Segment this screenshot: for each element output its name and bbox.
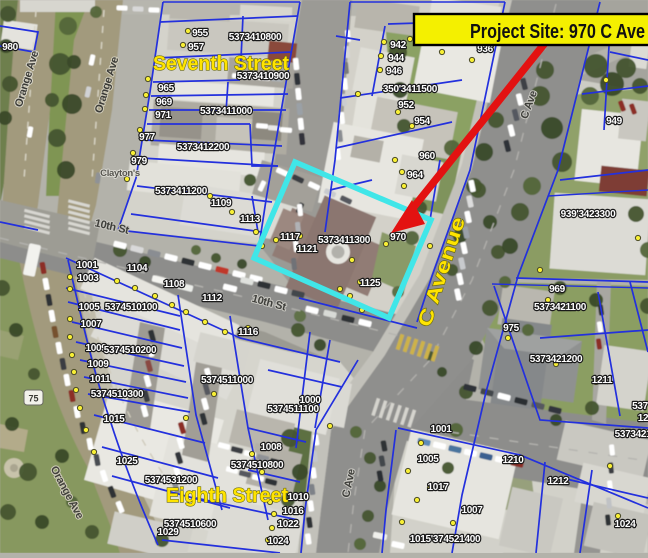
svg-text:1001: 1001 (430, 424, 452, 435)
svg-text:5374511100: 5374511100 (267, 404, 319, 415)
svg-text:955: 955 (192, 28, 209, 39)
svg-text:1010: 1010 (287, 492, 309, 503)
svg-text:5373411200: 5373411200 (155, 186, 208, 197)
svg-text:970: 970 (390, 232, 407, 243)
svg-text:1024: 1024 (614, 519, 636, 530)
svg-text:969: 969 (549, 284, 566, 295)
svg-text:979: 979 (131, 156, 148, 167)
svg-text:1017: 1017 (427, 482, 449, 493)
svg-text:1001: 1001 (76, 260, 98, 271)
svg-text:954: 954 (414, 116, 431, 127)
svg-text:5373410800: 5373410800 (229, 32, 282, 43)
svg-text:1007: 1007 (80, 319, 102, 330)
svg-text:1005: 1005 (417, 454, 439, 465)
svg-text:939'3423300: 939'3423300 (561, 209, 616, 220)
svg-text:965: 965 (158, 83, 175, 94)
svg-text:971: 971 (155, 110, 172, 121)
svg-text:1113: 1113 (240, 214, 261, 225)
svg-text:350'3411500: 350'3411500 (383, 84, 438, 95)
svg-text:944: 944 (388, 53, 405, 64)
svg-text:946: 946 (386, 66, 403, 77)
svg-text:Eighth Street: Eighth Street (166, 485, 288, 507)
svg-text:537: 537 (632, 401, 648, 412)
svg-text:Seventh Street: Seventh Street (153, 53, 289, 75)
svg-text:1116: 1116 (238, 327, 259, 338)
svg-text:1015'374521400: 1015'374521400 (410, 534, 481, 545)
svg-text:Clayton's: Clayton's (100, 168, 140, 179)
svg-text:977: 977 (139, 132, 156, 143)
svg-text:957: 957 (188, 42, 205, 53)
svg-text:1212: 1212 (547, 476, 569, 487)
svg-text:1024: 1024 (267, 536, 289, 547)
svg-text:952: 952 (398, 100, 415, 111)
svg-text:1211: 1211 (592, 375, 613, 386)
svg-text:1008: 1008 (260, 442, 282, 453)
svg-text:1104: 1104 (127, 263, 148, 274)
svg-text:5373421: 5373421 (615, 429, 648, 440)
svg-text:5373421200: 5373421200 (530, 354, 583, 365)
svg-text:5373412200: 5373412200 (177, 142, 230, 153)
svg-text:975: 975 (503, 323, 520, 334)
svg-text:949: 949 (606, 116, 623, 127)
svg-text:5373411300: 5373411300 (318, 235, 371, 246)
svg-text:1108: 1108 (164, 279, 185, 290)
svg-text:5374510100: 5374510100 (105, 302, 158, 313)
svg-text:960: 960 (419, 151, 436, 162)
svg-text:1029: 1029 (157, 527, 179, 538)
svg-text:1005: 1005 (78, 302, 100, 313)
svg-text:1112: 1112 (202, 293, 223, 304)
svg-text:5373411000: 5373411000 (200, 106, 253, 117)
svg-text:1016: 1016 (282, 506, 304, 517)
svg-text:5373421100: 5373421100 (534, 302, 587, 313)
svg-text:5374510300: 5374510300 (91, 389, 144, 400)
svg-text:75: 75 (28, 394, 38, 404)
svg-text:964: 964 (407, 170, 424, 181)
svg-text:1109: 1109 (211, 198, 232, 209)
svg-text:969: 969 (156, 97, 173, 108)
svg-text:942: 942 (390, 40, 407, 51)
svg-text:1117: 1117 (280, 232, 301, 243)
svg-text:1025: 1025 (116, 456, 138, 467)
svg-text:1121: 1121 (297, 244, 318, 255)
svg-text:5374510200: 5374510200 (104, 345, 157, 356)
svg-text:980: 980 (2, 42, 19, 53)
svg-text:1003: 1003 (77, 273, 99, 284)
svg-text:12: 12 (638, 413, 648, 424)
svg-text:1125: 1125 (360, 278, 381, 289)
svg-text:1022: 1022 (277, 519, 299, 530)
svg-text:5374511000: 5374511000 (201, 375, 254, 386)
svg-text:1007: 1007 (461, 505, 483, 516)
svg-text:1015: 1015 (103, 414, 125, 425)
svg-text:1011: 1011 (90, 374, 111, 385)
svg-text:1210: 1210 (502, 455, 524, 466)
svg-text:5374510800: 5374510800 (231, 460, 284, 471)
svg-text:Project Site: 970 C Ave: Project Site: 970 C Ave (470, 20, 645, 43)
svg-text:1009: 1009 (87, 359, 109, 370)
